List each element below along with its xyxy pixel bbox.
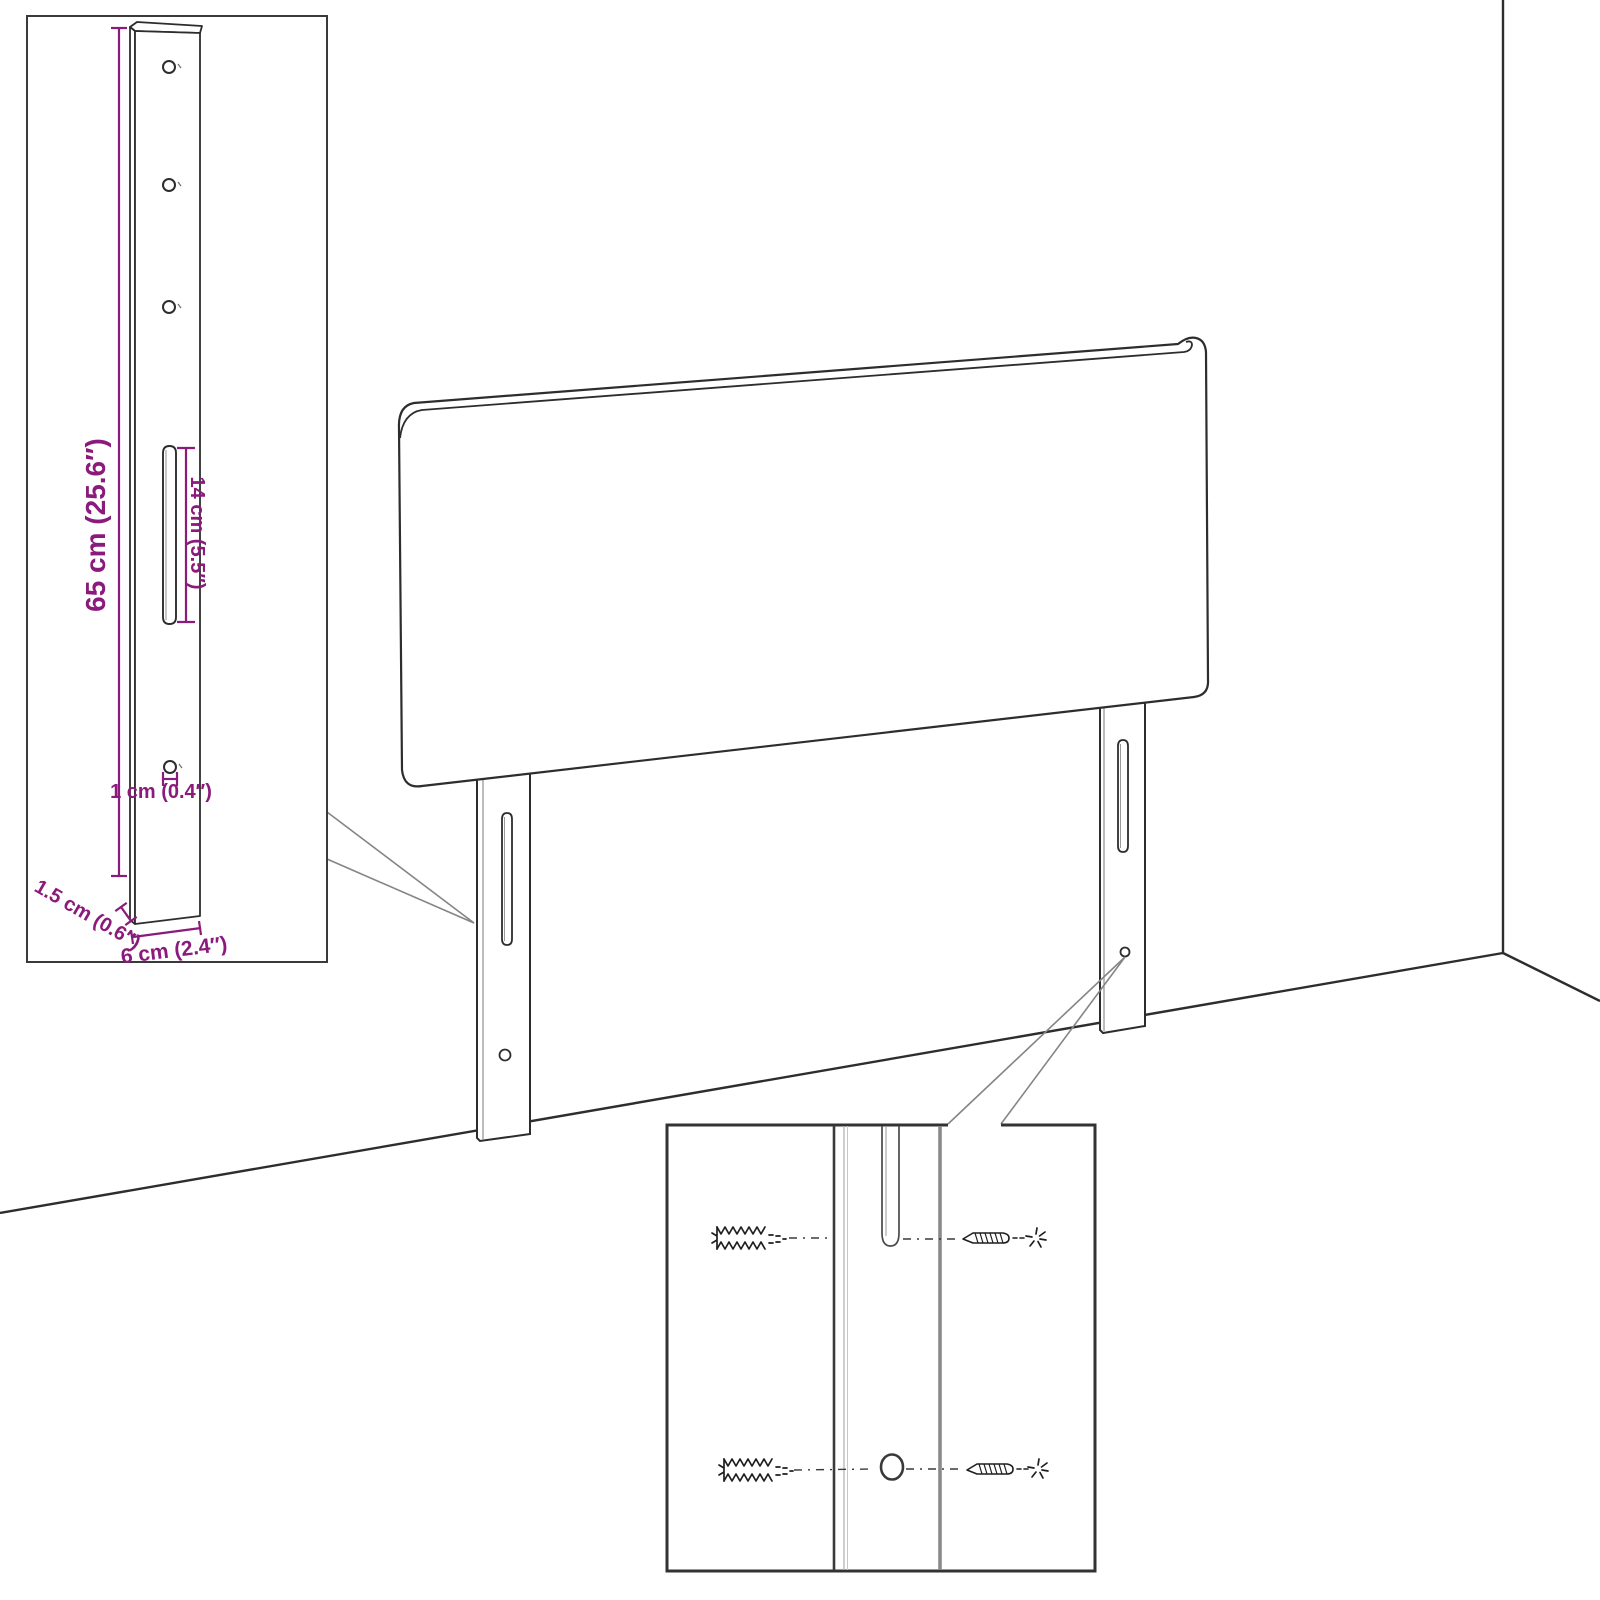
left-leg-slot bbox=[502, 813, 512, 945]
inset-hole-1 bbox=[163, 61, 175, 73]
diagram-stage: 65 cm (25.6″) 14 cm (5.5″) 1 cm (0.4″) 1… bbox=[0, 0, 1600, 1600]
inset2-leg-hole bbox=[881, 1455, 903, 1480]
inset-leg-slot bbox=[163, 446, 176, 624]
callout-line-left-upper bbox=[327, 812, 474, 923]
right-leg-slot bbox=[1118, 740, 1128, 852]
floor-line-right bbox=[1503, 953, 1600, 1001]
headboard-outline bbox=[399, 338, 1208, 787]
callout-line-left-lower bbox=[327, 859, 474, 923]
mounting-detail-inset bbox=[667, 1125, 1095, 1571]
left-leg bbox=[477, 770, 530, 1141]
right-leg-hole bbox=[1121, 948, 1130, 957]
headboard-panel bbox=[399, 338, 1208, 787]
inset-hole-3 bbox=[163, 301, 175, 313]
left-leg-hole bbox=[500, 1050, 511, 1061]
inset-hole-2 bbox=[163, 179, 175, 191]
inset2-fill bbox=[667, 1125, 1095, 1571]
assembly-diagram-canvas: 65 cm (25.6″) 14 cm (5.5″) 1 cm (0.4″) 1… bbox=[0, 0, 1600, 1600]
right-leg bbox=[1100, 701, 1145, 1033]
leg-dimension-inset: 65 cm (25.6″) 14 cm (5.5″) 1 cm (0.4″) 1… bbox=[27, 16, 327, 968]
dim-label-hole-diameter: 1 cm (0.4″) bbox=[110, 781, 212, 803]
callout-wedge-right bbox=[948, 957, 1125, 1124]
callout-wedge-left bbox=[327, 812, 474, 923]
inset-hole-4 bbox=[164, 761, 176, 773]
dim-label-slot-length: 14 cm (5.5″) bbox=[186, 477, 208, 590]
dim-label-leg-height: 65 cm (25.6″) bbox=[80, 438, 111, 612]
callout-line-right-upper bbox=[948, 957, 1125, 1124]
callout-line-right-lower bbox=[1001, 957, 1125, 1124]
